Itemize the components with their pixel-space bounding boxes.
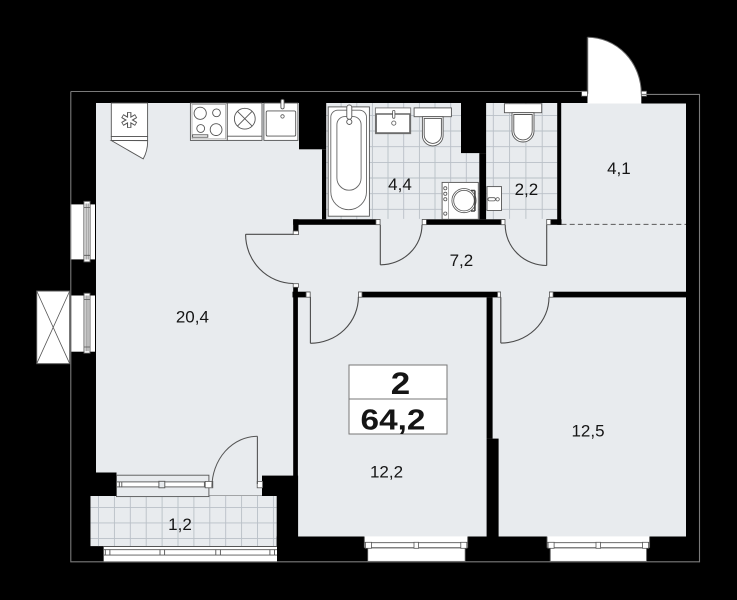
svg-text:2: 2	[391, 366, 410, 401]
svg-text:7,2: 7,2	[450, 251, 474, 270]
svg-text:2,2: 2,2	[515, 180, 539, 199]
svg-text:4,4: 4,4	[388, 175, 412, 194]
svg-text:64,2: 64,2	[361, 404, 426, 436]
svg-text:12,2: 12,2	[370, 463, 403, 482]
svg-text:1,2: 1,2	[168, 515, 192, 534]
svg-text:20,4: 20,4	[176, 308, 209, 327]
svg-text:12,5: 12,5	[571, 421, 604, 440]
svg-text:4,1: 4,1	[607, 159, 631, 178]
